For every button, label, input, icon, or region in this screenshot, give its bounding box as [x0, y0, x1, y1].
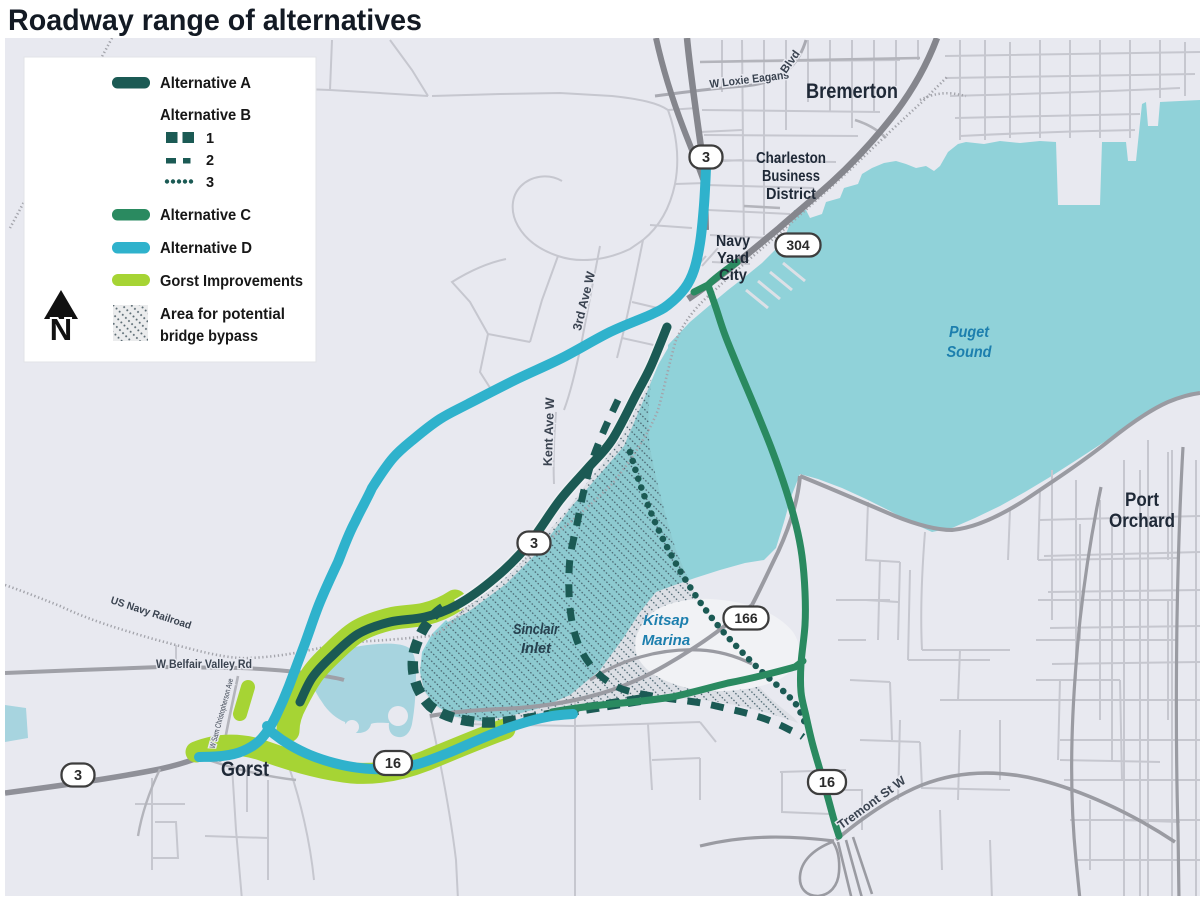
svg-text:Kitsap: Kitsap [643, 612, 689, 629]
svg-text:Charleston: Charleston [756, 150, 826, 167]
svg-text:16: 16 [385, 756, 401, 772]
svg-text:Gorst: Gorst [221, 758, 269, 781]
svg-text:Bremerton: Bremerton [806, 80, 898, 103]
svg-text:W Belfair Valley Rd: W Belfair Valley Rd [156, 659, 252, 671]
svg-text:Yard: Yard [717, 250, 749, 267]
svg-text:Alternative B: Alternative B [160, 107, 251, 124]
svg-text:Navy: Navy [716, 233, 750, 250]
svg-text:Kent Ave W: Kent Ave W [541, 397, 557, 466]
svg-text:3: 3 [702, 150, 710, 166]
svg-text:304: 304 [786, 237, 810, 253]
svg-text:Gorst Improvements: Gorst Improvements [160, 273, 303, 290]
svg-text:Area for potential: Area for potential [160, 306, 285, 323]
svg-text:16: 16 [819, 775, 835, 791]
svg-text:Puget: Puget [949, 324, 990, 341]
svg-text:Roadway range of alternatives: Roadway range of alternatives [8, 4, 422, 37]
svg-text:Sinclair: Sinclair [513, 621, 560, 638]
svg-text:District: District [766, 186, 816, 203]
svg-text:3: 3 [530, 536, 538, 552]
svg-text:Marina: Marina [642, 632, 690, 649]
svg-text:1: 1 [206, 131, 214, 147]
svg-text:Inlet: Inlet [521, 640, 552, 657]
svg-text:3: 3 [74, 768, 82, 784]
svg-text:Alternative D: Alternative D [160, 240, 252, 257]
svg-text:Sound: Sound [947, 344, 993, 361]
svg-text:3: 3 [206, 175, 214, 191]
svg-text:Orchard: Orchard [1109, 511, 1175, 532]
svg-text:Alternative C: Alternative C [160, 207, 251, 224]
svg-text:bridge bypass: bridge bypass [160, 328, 258, 345]
svg-text:166: 166 [734, 610, 758, 626]
svg-text:Business: Business [762, 168, 820, 185]
svg-text:City: City [719, 267, 747, 284]
svg-text:Port: Port [1125, 490, 1160, 511]
svg-text:2: 2 [206, 153, 214, 169]
svg-text:Alternative A: Alternative A [160, 75, 251, 92]
svg-text:N: N [50, 312, 72, 347]
